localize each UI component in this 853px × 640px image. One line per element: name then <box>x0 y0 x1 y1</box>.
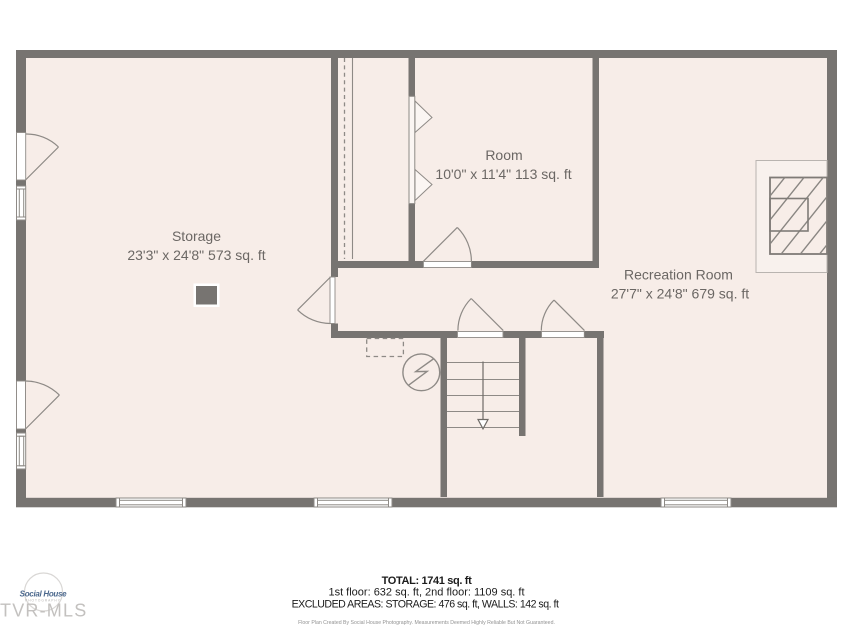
svg-text:TVR-MLS: TVR-MLS <box>0 601 87 621</box>
svg-text:Room: Room <box>485 147 522 163</box>
svg-text:Social House: Social House <box>20 590 67 599</box>
svg-text:27'7" x 24'8" 679 sq. ft: 27'7" x 24'8" 679 sq. ft <box>611 286 749 302</box>
svg-text:TOTAL: 1741 sq. ft: TOTAL: 1741 sq. ft <box>382 575 473 587</box>
svg-text:10'0" x 11'4" 113 sq. ft: 10'0" x 11'4" 113 sq. ft <box>435 166 571 182</box>
svg-text:1st floor: 632 sq. ft, 2nd flo: 1st floor: 632 sq. ft, 2nd floor: 1109 s… <box>328 587 524 599</box>
svg-text:Recreation Room: Recreation Room <box>624 267 733 283</box>
svg-text:EXCLUDED AREAS: STORAGE: 476 s: EXCLUDED AREAS: STORAGE: 476 sq. ft, WAL… <box>292 598 559 610</box>
svg-text:Floor Plan Created By Social H: Floor Plan Created By Social House Photo… <box>298 620 555 626</box>
svg-text:23'3" x 24'8" 573 sq. ft: 23'3" x 24'8" 573 sq. ft <box>127 247 265 263</box>
svg-text:Storage: Storage <box>172 228 221 244</box>
